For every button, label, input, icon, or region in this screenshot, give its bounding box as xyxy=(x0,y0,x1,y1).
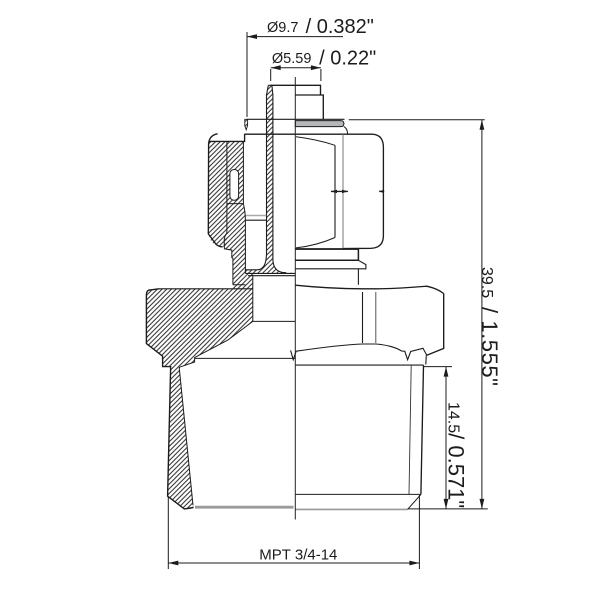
svg-text:Ø5.59: Ø5.59 xyxy=(272,51,312,67)
svg-text:Ø9.7: Ø9.7 xyxy=(267,20,298,36)
svg-text:/ 0.382": / 0.382" xyxy=(306,16,374,38)
svg-text:MPT 3/4-14: MPT 3/4-14 xyxy=(259,547,337,564)
svg-text:/ 0.22": / 0.22" xyxy=(319,47,376,69)
